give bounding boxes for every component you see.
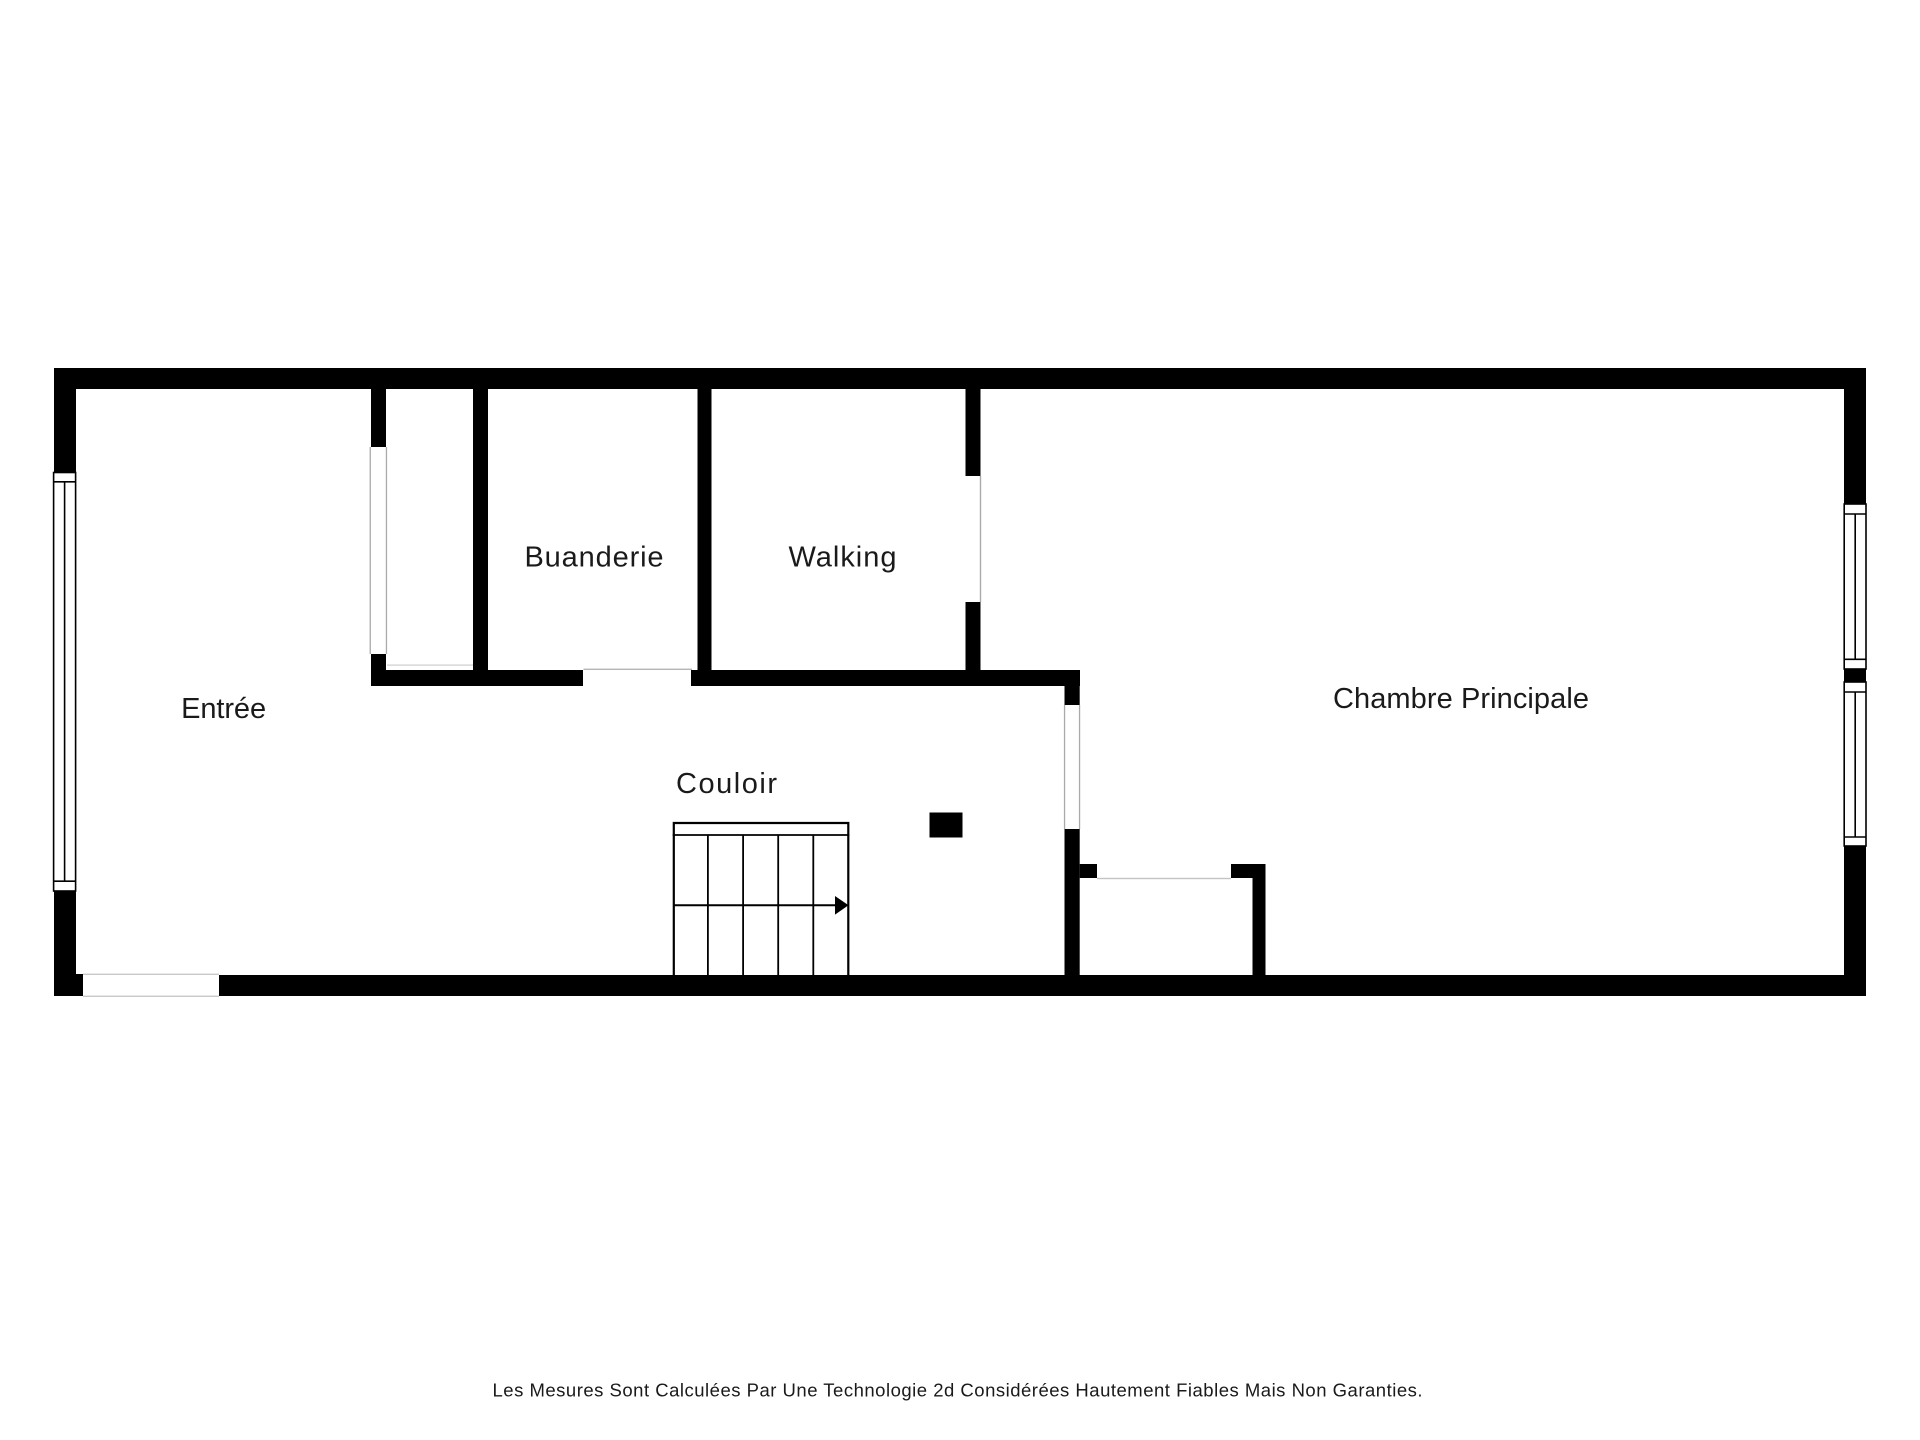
svg-text:Chambre Principale: Chambre Principale xyxy=(1333,683,1589,715)
svg-text:Buanderie: Buanderie xyxy=(525,542,664,574)
svg-text:Walking: Walking xyxy=(789,542,897,574)
svg-text:Entrée: Entrée xyxy=(181,693,266,725)
svg-text:Les Mesures Sont Calculées Par: Les Mesures Sont Calculées Par Une Techn… xyxy=(493,1380,1423,1401)
svg-text:Couloir: Couloir xyxy=(676,768,777,800)
